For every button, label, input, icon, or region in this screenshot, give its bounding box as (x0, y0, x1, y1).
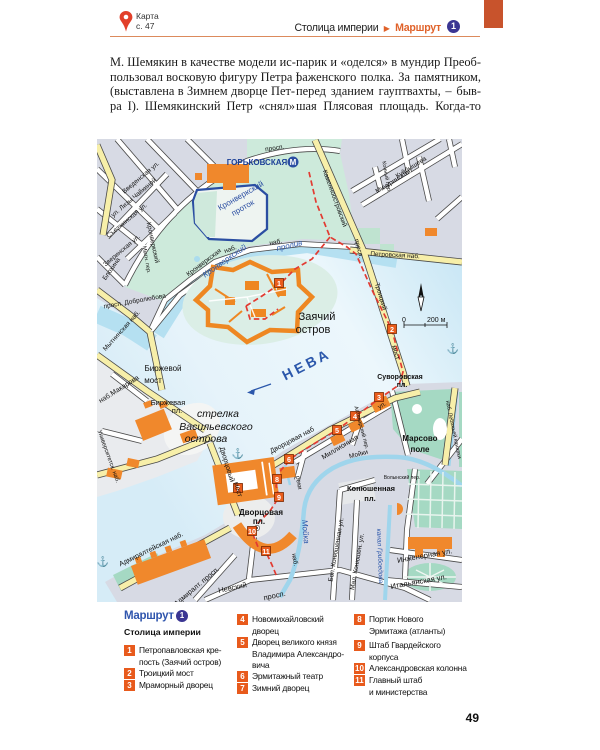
svg-text:Волынский пер.: Волынский пер. (384, 474, 421, 481)
svg-text:10: 10 (248, 527, 256, 536)
svg-text:Заячий: Заячий (299, 311, 336, 323)
svg-text:поле: поле (411, 445, 430, 454)
svg-text:пл.: пл. (397, 382, 408, 389)
svg-text:мост: мост (144, 376, 162, 385)
svg-text:острова: острова (185, 433, 228, 445)
svg-text:2: 2 (390, 325, 394, 334)
svg-text:остров: остров (296, 324, 331, 336)
svg-text:Дворцовая: Дворцовая (239, 508, 283, 517)
svg-text:пл.: пл. (172, 406, 183, 415)
svg-text:Суворовская: Суворовская (377, 374, 423, 381)
svg-text:200 м: 200 м (427, 317, 446, 324)
svg-text:6: 6 (287, 455, 291, 464)
svg-text:стрелка: стрелка (197, 408, 239, 420)
svg-text:5: 5 (335, 426, 339, 435)
svg-text:М: М (290, 158, 297, 167)
svg-text:⚓: ⚓ (97, 555, 109, 568)
svg-text:пл.: пл. (253, 517, 265, 526)
svg-text:Биржевой: Биржевой (144, 364, 181, 373)
svg-text:⚓: ⚓ (447, 342, 459, 355)
svg-text:8: 8 (275, 475, 279, 484)
svg-text:⚓: ⚓ (232, 447, 244, 460)
svg-text:11: 11 (262, 547, 270, 556)
svg-text:9: 9 (277, 493, 281, 502)
svg-text:Марсово: Марсово (402, 434, 437, 443)
svg-text:Васильевского: Васильевского (179, 421, 253, 433)
svg-text:3: 3 (377, 393, 381, 402)
svg-text:пл.: пл. (364, 494, 375, 503)
svg-text:ГОРЬКОВСКАЯ: ГОРЬКОВСКАЯ (227, 158, 288, 167)
svg-text:1: 1 (277, 279, 281, 288)
svg-text:Конюшенная: Конюшенная (347, 484, 395, 493)
